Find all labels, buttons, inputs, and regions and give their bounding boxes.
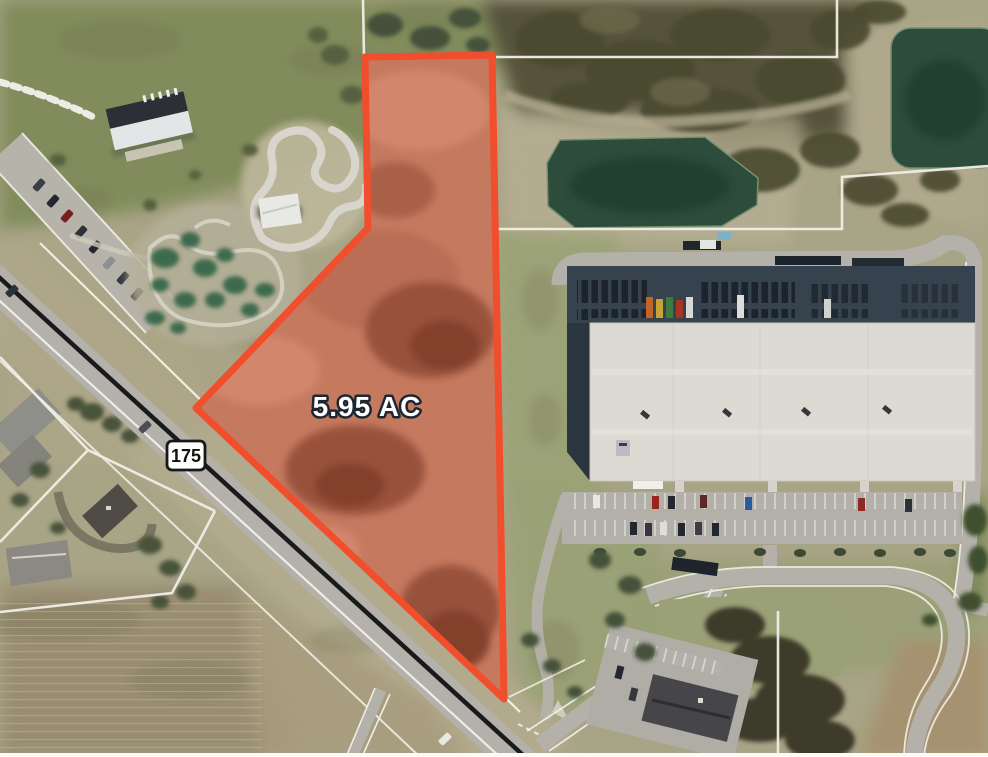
warehouse-building	[567, 318, 975, 495]
aerial-parcel-map: 5.95 AC 175	[0, 0, 988, 757]
pond-northeast	[891, 28, 988, 168]
parcel-area-label: 5.95 AC	[313, 391, 422, 422]
go-kart-track	[241, 121, 369, 249]
route-shield-number: 175	[171, 446, 201, 466]
kart-building	[256, 193, 302, 228]
route-175-shield: 175	[167, 441, 205, 470]
image-border-bottom	[0, 753, 988, 757]
plowed-field-rows	[0, 600, 262, 757]
map-canvas: 5.95 AC 175	[0, 0, 988, 757]
warehouse-roof	[590, 323, 975, 481]
